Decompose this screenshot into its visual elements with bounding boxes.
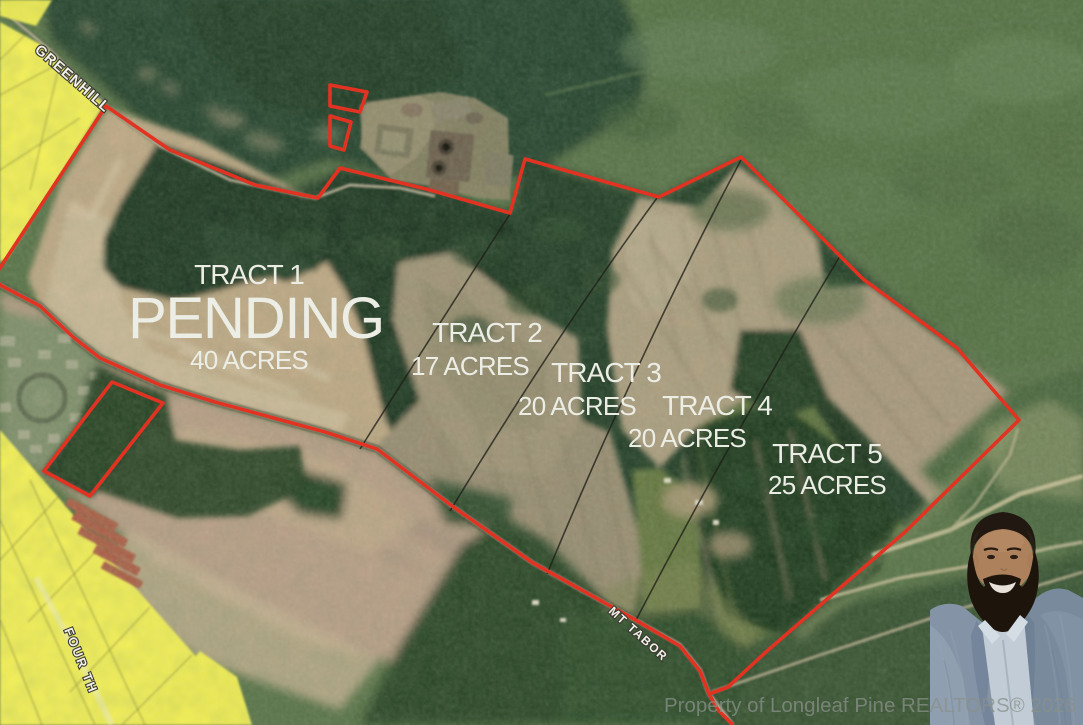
svg-text:TRACT 2: TRACT 2 bbox=[432, 317, 542, 348]
svg-text:TRACT 5: TRACT 5 bbox=[772, 438, 882, 469]
svg-text:40 ACRES: 40 ACRES bbox=[190, 345, 308, 375]
svg-text:TRACT 3: TRACT 3 bbox=[551, 357, 661, 388]
svg-text:20 ACRES: 20 ACRES bbox=[518, 391, 636, 421]
svg-text:25 ACRES: 25 ACRES bbox=[768, 470, 886, 500]
svg-text:PENDING: PENDING bbox=[128, 286, 384, 351]
svg-text:20 ACRES: 20 ACRES bbox=[628, 423, 746, 453]
svg-text:Property of Longleaf Pine REAL: Property of Longleaf Pine REALTORS® 2026 bbox=[664, 694, 1076, 717]
svg-text:17 ACRES: 17 ACRES bbox=[411, 351, 529, 381]
svg-text:TRACT 4: TRACT 4 bbox=[662, 390, 772, 421]
